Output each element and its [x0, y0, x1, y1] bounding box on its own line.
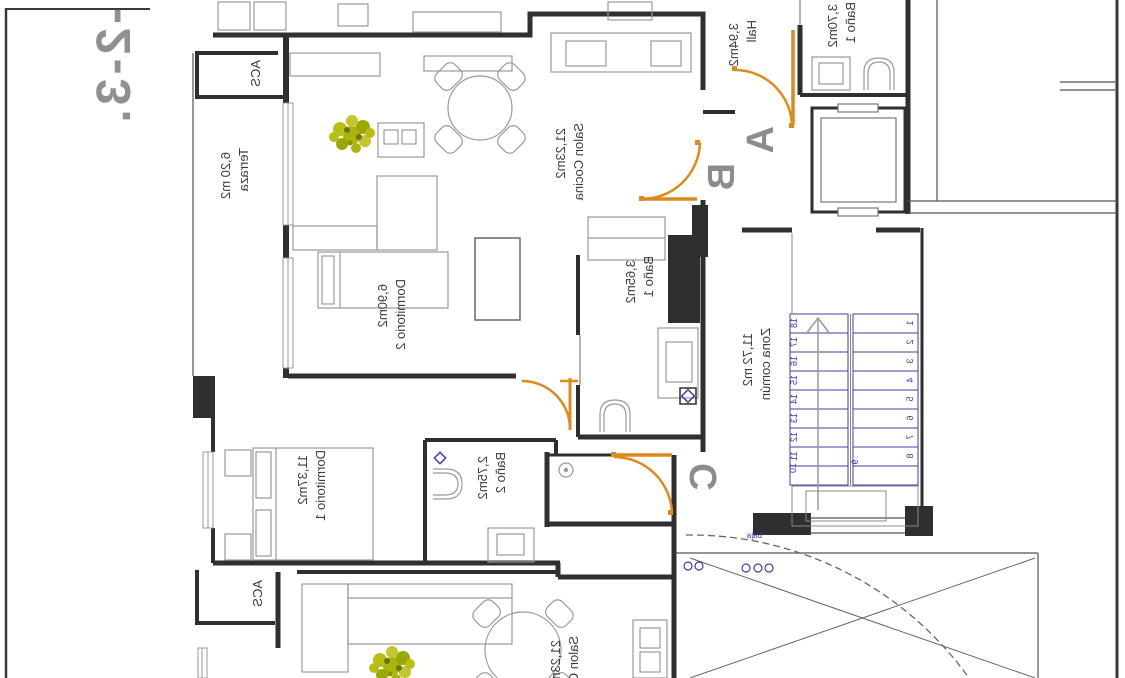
label-salon-area: 21,23m2 — [553, 128, 568, 179]
sofa — [293, 176, 437, 250]
door-c — [611, 452, 673, 515]
stair-num-left: 14 — [789, 394, 799, 404]
staircase — [790, 233, 918, 526]
floor-plan-canvas: -2-3. Terraza 6,20 m2 ACS ACS Salon Coci… — [0, 0, 1125, 678]
kitchen-counter — [551, 33, 691, 72]
cabinet-bottom — [633, 620, 667, 678]
doors — [522, 30, 794, 515]
stair-note: baja — [746, 531, 762, 540]
stair-num-left: 18 — [789, 318, 799, 328]
stair-num-left: 17 — [789, 337, 799, 347]
door-a — [732, 30, 794, 128]
sideboard — [290, 53, 512, 76]
plant-bottom — [369, 646, 415, 678]
stair-num-right: 5 — [905, 396, 915, 401]
wardrobe-dorm2 — [475, 238, 520, 320]
label-salon-bottom-area: 21,23m2 — [548, 640, 563, 678]
stair-num-left: 15 — [789, 375, 799, 385]
label-dorm2-area: 6,90m2 — [375, 284, 390, 327]
letter-c: C — [683, 463, 725, 490]
walls — [197, 0, 922, 678]
label-hall-area: 3,94m2 — [726, 23, 741, 66]
label-bano2-area: 2,75m2 — [475, 456, 490, 499]
closet-hall — [588, 217, 665, 260]
label-salon-name: Salon Cocina — [571, 123, 586, 201]
label-hall-name: Hall — [744, 20, 759, 43]
bano2-diamond — [434, 452, 445, 463]
label-salon-bottom-name: Salon Cocina — [566, 636, 581, 678]
stair-num-right: 1 — [905, 320, 915, 325]
label-terraza-name: Terraza — [236, 148, 251, 192]
sink-bano1-top — [812, 57, 850, 90]
label-acs-bottom: ACS — [250, 580, 265, 607]
upper-apartment-furniture — [218, 2, 652, 32]
floor-plan-drawing: -2-3. Terraza 6,20 m2 ACS ACS Salon Coci… — [0, 0, 1125, 678]
label-zona-name: Zona común — [758, 328, 773, 400]
stair-num-landing: 9 — [850, 459, 860, 464]
letter-b: B — [701, 163, 743, 190]
label-bano1top-area: 3,70m2 — [825, 4, 840, 47]
stair-num-right: 6 — [905, 415, 915, 420]
label-acs-top: ACS — [248, 60, 263, 87]
stair-num-right: 7 — [905, 434, 915, 439]
washer-diamond — [682, 390, 695, 403]
stair-direction-arrow — [806, 318, 830, 510]
boiler — [559, 463, 573, 477]
tv-cabinet — [378, 123, 424, 157]
stair-num-left: 16 — [789, 356, 799, 366]
plant-salon — [329, 115, 375, 153]
label-dorm1-name: Dormitorio 1 — [313, 450, 328, 521]
stair-num-right: 8 — [905, 453, 915, 458]
stair-num-landing: 10 — [788, 463, 798, 473]
sheet-title: -2-3. — [88, 8, 141, 127]
label-dorm2-name: Dormitorio 2 — [393, 279, 408, 350]
toilet-bano1 — [600, 400, 630, 432]
label-bano1mid-area: 3,65m2 — [623, 260, 638, 303]
dining-table-mid — [432, 60, 528, 156]
courtyard-circles — [684, 562, 773, 572]
letter-a: A — [740, 126, 782, 153]
stair-numbers: 18 17 16 15 14 13 12 11 1 2 3 4 5 6 7 8 … — [788, 318, 915, 473]
stair-num-right: 4 — [905, 377, 915, 382]
stair-num-right: 3 — [905, 358, 915, 363]
stair-num-left: 12 — [789, 432, 799, 442]
stair-num-right: 2 — [905, 339, 915, 344]
stair-num-left: 11 — [789, 451, 799, 460]
door-dorm1 — [522, 378, 570, 430]
label-bano1top-name: Baño 1 — [843, 2, 858, 43]
door-b — [639, 140, 700, 201]
label-zona-area: 11,72 m2 — [740, 333, 755, 386]
label-bano1mid-name: Baño 1 — [641, 256, 656, 297]
elevator — [812, 104, 905, 216]
toilet-bano1-top — [864, 58, 894, 90]
courtyard-markings — [686, 535, 1035, 678]
stair-num-left: 13 — [789, 413, 799, 423]
toilet-bano2 — [433, 469, 462, 499]
shower-bano2 — [488, 528, 534, 562]
label-terraza-area: 6,20 m2 — [218, 152, 233, 199]
label-bano2-name: Baño 2 — [493, 452, 508, 493]
label-dorm1-area: 11,37m2 — [295, 455, 310, 505]
